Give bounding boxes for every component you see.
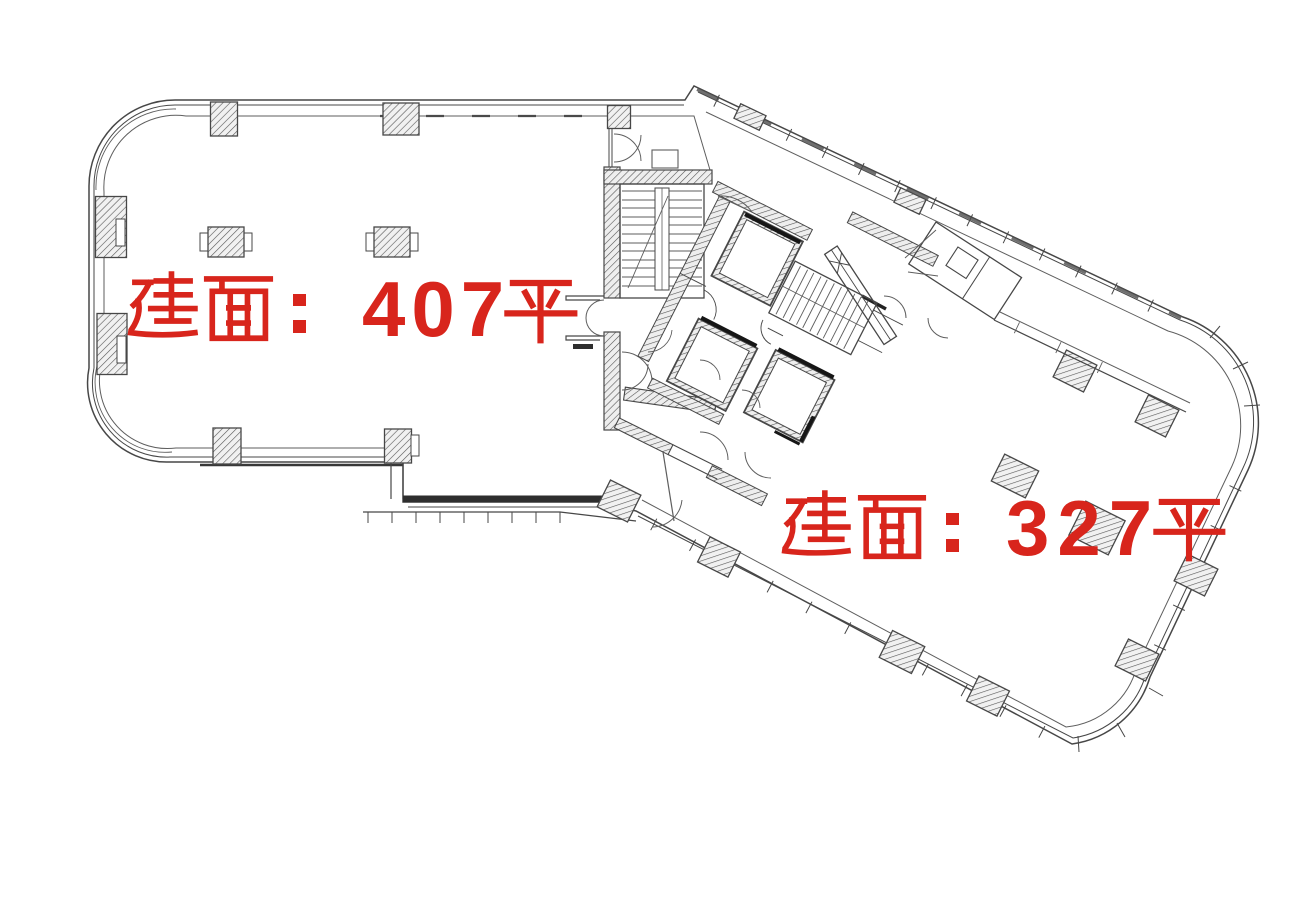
svg-text:327: 327 <box>1006 484 1160 572</box>
svg-text:407: 407 <box>362 265 510 353</box>
